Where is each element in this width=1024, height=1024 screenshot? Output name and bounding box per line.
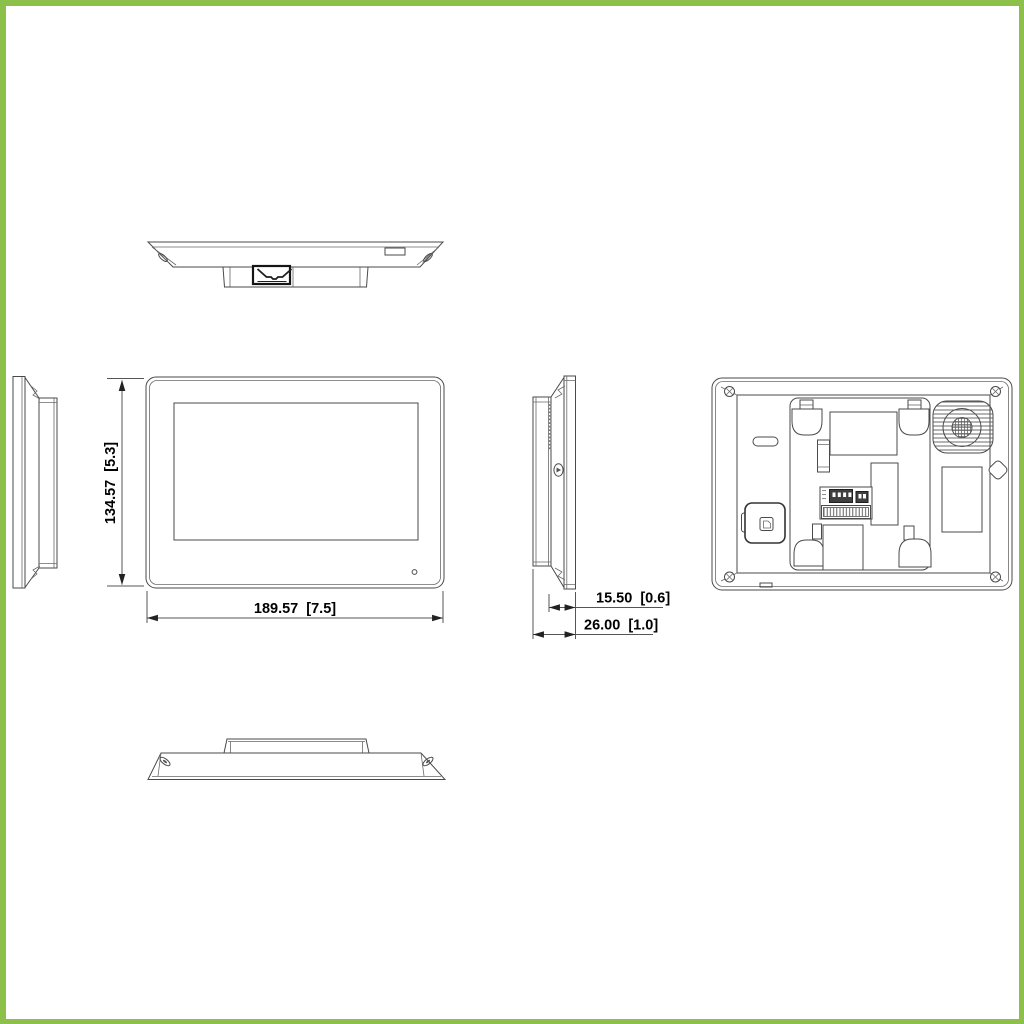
side-vent-slots bbox=[549, 404, 552, 450]
height-dimension-label: 134.57 [5.3] bbox=[103, 442, 119, 524]
rear-strip bbox=[818, 440, 830, 472]
body-depth-dimension-label: 15.50 [0.6] bbox=[596, 591, 670, 607]
width-dimension-label: 189.57 [7.5] bbox=[254, 601, 336, 617]
screw-icon bbox=[991, 572, 1001, 582]
rear-tall-slot bbox=[871, 463, 898, 525]
left-view-front-panel bbox=[13, 377, 25, 589]
speaker-grille bbox=[933, 401, 993, 453]
page-frame-top bbox=[0, 0, 1024, 6]
page-frame-bottom bbox=[0, 1019, 1024, 1024]
rj45-port bbox=[253, 266, 292, 284]
sd-card-cover bbox=[742, 503, 786, 543]
aux-connector bbox=[856, 492, 868, 503]
page-frame-left bbox=[0, 0, 6, 1024]
rear-label-area bbox=[942, 467, 982, 532]
connector-block bbox=[820, 487, 872, 519]
screw-icon bbox=[725, 572, 735, 582]
rear-slot-pill bbox=[753, 437, 778, 446]
rear-view bbox=[712, 378, 1012, 590]
screw-icon bbox=[991, 387, 1001, 397]
side-view-front-panel bbox=[564, 376, 576, 589]
dimension-drawing: 134.57 [5.3] 189.57 [7.5] 15.50 [0.6] bbox=[0, 0, 1024, 1024]
front-view: 134.57 [5.3] 189.57 [7.5] bbox=[103, 377, 444, 623]
front-view-screen bbox=[174, 403, 418, 540]
rear-compartment bbox=[830, 412, 897, 455]
total-depth-dimension-label: 26.00 [1.0] bbox=[584, 618, 658, 634]
rear-lower-compartment bbox=[823, 525, 863, 570]
page-frame-right bbox=[1019, 0, 1024, 1024]
screw-icon bbox=[725, 387, 735, 397]
bottom-view-panel bbox=[148, 753, 445, 780]
